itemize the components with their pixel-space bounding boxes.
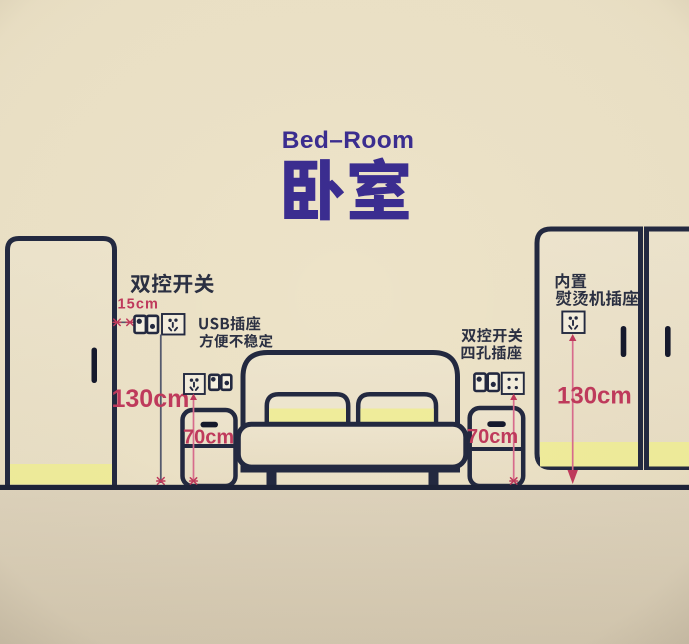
svg-text:130cm: 130cm xyxy=(557,383,632,410)
svg-text:Bed–Room: Bed–Room xyxy=(282,127,415,154)
svg-text:70cm: 70cm xyxy=(467,426,518,448)
svg-text:70cm: 70cm xyxy=(183,427,234,449)
svg-text:15cm: 15cm xyxy=(118,297,160,313)
svg-text:130cm: 130cm xyxy=(112,385,190,413)
